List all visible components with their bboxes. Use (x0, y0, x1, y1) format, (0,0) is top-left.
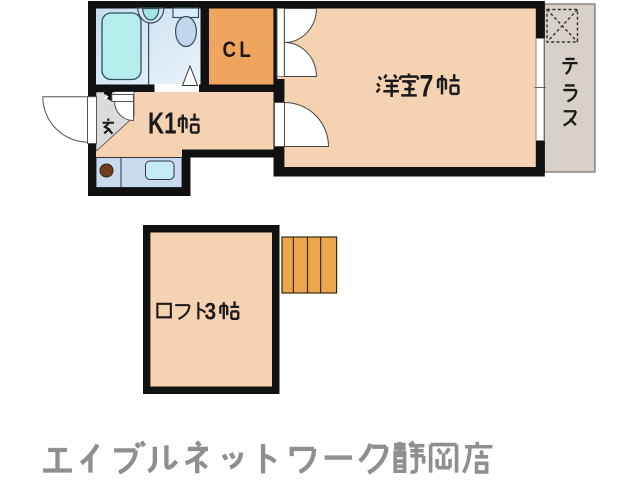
svg-text:7: 7 (420, 68, 434, 103)
svg-text:3: 3 (205, 298, 217, 325)
svg-text:CL: CL (223, 39, 255, 63)
svg-text:K1: K1 (148, 106, 177, 140)
